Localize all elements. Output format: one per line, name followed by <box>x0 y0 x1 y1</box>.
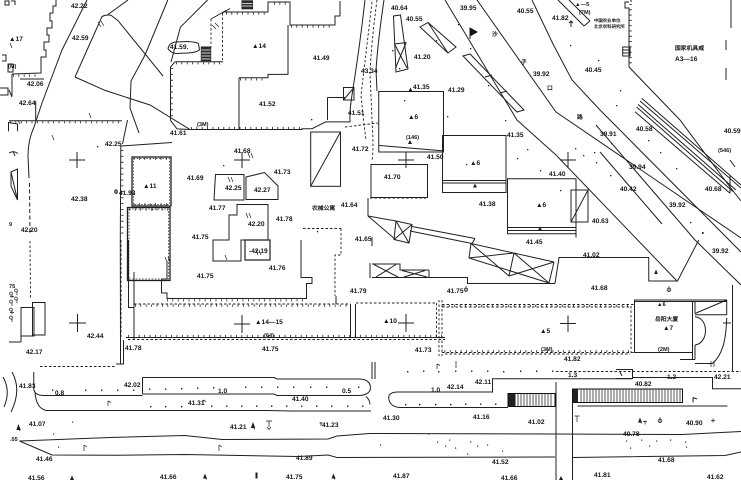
svg-text:41.65: 41.65 <box>355 236 372 243</box>
svg-text:41.23: 41.23 <box>322 422 339 429</box>
svg-text:41.66: 41.66 <box>160 474 177 480</box>
svg-text:41.61: 41.61 <box>170 130 187 137</box>
svg-text:41.75: 41.75 <box>447 288 464 295</box>
svg-text:(64): (64) <box>264 332 274 339</box>
svg-text:北京农科研究所: 北京农科研究所 <box>594 24 625 29</box>
svg-text:▲6: ▲6 <box>657 302 666 308</box>
svg-text:(546): (546) <box>718 147 731 154</box>
svg-text:42.59: 42.59 <box>72 35 89 42</box>
svg-text:口: 口 <box>547 85 553 92</box>
svg-text:41.35: 41.35 <box>507 132 524 139</box>
svg-text:国家机具威: 国家机具威 <box>675 44 704 52</box>
svg-text:41.16: 41.16 <box>473 414 490 421</box>
svg-text:42.02: 42.02 <box>124 382 141 389</box>
svg-text:40.45: 40.45 <box>585 67 602 74</box>
svg-text:42.06: 42.06 <box>27 81 44 88</box>
svg-text:41.68: 41.68 <box>591 285 608 292</box>
svg-text:39.91: 39.91 <box>600 131 617 138</box>
svg-text:42.21: 42.21 <box>714 374 731 381</box>
svg-text:-42.19: -42.19 <box>249 248 268 255</box>
svg-text:41.46: 41.46 <box>36 456 53 463</box>
svg-text:40.78: 40.78 <box>623 431 640 438</box>
svg-text:42.22: 42.22 <box>71 3 88 10</box>
svg-text:39.92: 39.92 <box>533 71 550 78</box>
svg-text:(146): (146) <box>406 134 419 141</box>
svg-text:(3M): (3M) <box>541 346 553 353</box>
svg-text:(7M): (7M) <box>579 9 591 16</box>
svg-text:41.68: 41.68 <box>658 457 675 464</box>
svg-text:♀41.93: ♀41.93 <box>114 190 136 197</box>
svg-text:42.17: 42.17 <box>26 349 43 356</box>
svg-text:▲—5: ▲—5 <box>575 2 589 8</box>
svg-text:41.83: 41.83 <box>19 383 36 390</box>
svg-text:42.64: 42.64 <box>19 100 36 107</box>
svg-text:(2M): (2M) <box>658 346 670 353</box>
svg-text:41.02: 41.02 <box>583 252 600 259</box>
svg-text:40.90: 40.90 <box>686 420 703 427</box>
svg-text:41.68: 41.68 <box>234 148 251 155</box>
svg-text:40.68: 40.68 <box>705 186 722 193</box>
svg-text:42.25: 42.25 <box>105 141 122 148</box>
svg-text:41.52: 41.52 <box>492 459 509 466</box>
svg-text:41.07: 41.07 <box>29 421 46 428</box>
svg-text:41.75: 41.75 <box>197 273 214 280</box>
svg-text:41.77: 41.77 <box>209 205 226 212</box>
svg-text:▲14—15: ▲14—15 <box>255 319 283 326</box>
svg-text:42.14: 42.14 <box>447 384 464 391</box>
svg-text:41.56: 41.56 <box>28 475 45 480</box>
svg-text:41.79: 41.79 <box>350 288 367 295</box>
svg-text:41.64: 41.64 <box>341 202 358 209</box>
svg-text:41.31: 41.31 <box>188 400 205 407</box>
svg-text:路: 路 <box>577 113 583 121</box>
svg-text:42.27: 42.27 <box>254 187 271 194</box>
svg-text:40.82: 40.82 <box>635 381 652 388</box>
svg-text:41.40: 41.40 <box>292 396 309 403</box>
svg-text:41.40: 41.40 <box>549 171 566 178</box>
svg-text:A3—16: A3—16 <box>675 56 698 63</box>
svg-text:41.87: 41.87 <box>393 473 410 480</box>
svg-text:41.76: 41.76 <box>269 265 286 272</box>
svg-text:41.49: 41.49 <box>313 55 330 62</box>
svg-text:39.92: 39.92 <box>669 202 686 209</box>
svg-text:子: 子 <box>521 59 527 66</box>
svg-text:41.30: 41.30 <box>383 415 400 422</box>
svg-text:39.92: 39.92 <box>712 248 729 255</box>
svg-text:▲10: ▲10 <box>383 318 397 325</box>
svg-text:0.8: 0.8 <box>55 390 64 397</box>
svg-text:(3M): (3M) <box>197 121 209 128</box>
svg-text:▲6: ▲6 <box>408 114 419 121</box>
svg-text:1.3: 1.3 <box>568 372 577 379</box>
svg-text:▲7: ▲7 <box>663 325 674 332</box>
svg-text:1.0: 1.0 <box>218 388 227 395</box>
svg-text:42.25: 42.25 <box>225 185 242 192</box>
svg-text:41.75: 41.75 <box>286 474 303 480</box>
svg-text:▲17: ▲17 <box>9 36 23 43</box>
svg-text:41.82: 41.82 <box>564 356 581 363</box>
svg-text:41.81: 41.81 <box>594 472 611 479</box>
svg-text:40.64: 40.64 <box>391 5 408 12</box>
svg-text:▲14: ▲14 <box>252 43 266 50</box>
svg-text:39.94: 39.94 <box>629 164 646 171</box>
svg-text:41.35: 41.35 <box>413 84 430 91</box>
svg-text:(M): (M) <box>8 63 17 70</box>
svg-text:41.21: 41.21 <box>230 424 247 431</box>
svg-text:▲6: ▲6 <box>470 160 481 167</box>
svg-text:41.51: 41.51 <box>348 110 365 117</box>
svg-text:41.78: 41.78 <box>276 216 293 223</box>
svg-text:41.78: 41.78 <box>125 345 142 352</box>
svg-text:41.59.: 41.59. <box>170 44 189 51</box>
svg-text:1.2: 1.2 <box>667 374 676 381</box>
svg-text:中国农业单位: 中国农业单位 <box>594 18 621 23</box>
svg-text:岳阳大厦: 岳阳大厦 <box>655 316 678 323</box>
svg-text:41.50: 41.50 <box>427 154 444 161</box>
svg-text:▲11: ▲11 <box>143 183 157 190</box>
svg-text:40.55: 40.55 <box>517 8 534 15</box>
svg-text:41.02: 41.02 <box>528 419 545 426</box>
svg-text:41.73: 41.73 <box>274 169 291 176</box>
svg-text:▲6: ▲6 <box>536 202 547 209</box>
svg-text:41.75: 41.75 <box>192 234 209 241</box>
svg-text:40.42: 40.42 <box>620 186 637 193</box>
svg-text:41.66: 41.66 <box>501 475 518 480</box>
svg-text:42.20: 42.20 <box>248 221 265 228</box>
svg-text:41.38: 41.38 <box>479 201 496 208</box>
svg-text:40.63: 40.63 <box>592 218 609 225</box>
svg-text:42.44: 42.44 <box>87 333 104 340</box>
svg-text:42.11: 42.11 <box>475 379 491 386</box>
svg-text:41.73: 41.73 <box>415 347 432 354</box>
svg-text:41.70: 41.70 <box>384 174 401 181</box>
svg-text:▲5: ▲5 <box>540 328 551 335</box>
svg-text:40.55: 40.55 <box>406 16 423 23</box>
svg-text:41.69: 41.69 <box>187 175 204 182</box>
svg-text:41.29: 41.29 <box>448 87 465 94</box>
svg-text:0.5: 0.5 <box>342 388 351 395</box>
svg-text:41.52: 41.52 <box>259 101 276 108</box>
svg-text:1.0: 1.0 <box>431 387 440 394</box>
svg-text:41.89: 41.89 <box>296 455 313 462</box>
svg-text:41.62: 41.62 <box>707 474 724 480</box>
svg-text:40.59: 40.59 <box>724 128 741 135</box>
svg-text:75: 75 <box>9 284 15 290</box>
svg-text:41.82: 41.82 <box>552 15 569 22</box>
svg-text:41.20: 41.20 <box>414 54 431 61</box>
svg-text:39.95: 39.95 <box>460 5 477 12</box>
svg-text:40.58: 40.58 <box>636 126 653 133</box>
svg-text:41.75: 41.75 <box>262 346 279 353</box>
svg-text:农械公寓: 农械公寓 <box>311 204 335 212</box>
svg-text:沙: 沙 <box>492 31 498 38</box>
svg-text:41.45: 41.45 <box>526 239 543 246</box>
svg-text:42.38: 42.38 <box>71 196 88 203</box>
svg-text:.05: .05 <box>10 437 18 443</box>
svg-text:9: 9 <box>9 222 12 228</box>
svg-text:41.72: 41.72 <box>352 146 369 153</box>
svg-text:42.20: 42.20 <box>21 227 38 234</box>
svg-text:43.34: 43.34 <box>361 68 378 75</box>
